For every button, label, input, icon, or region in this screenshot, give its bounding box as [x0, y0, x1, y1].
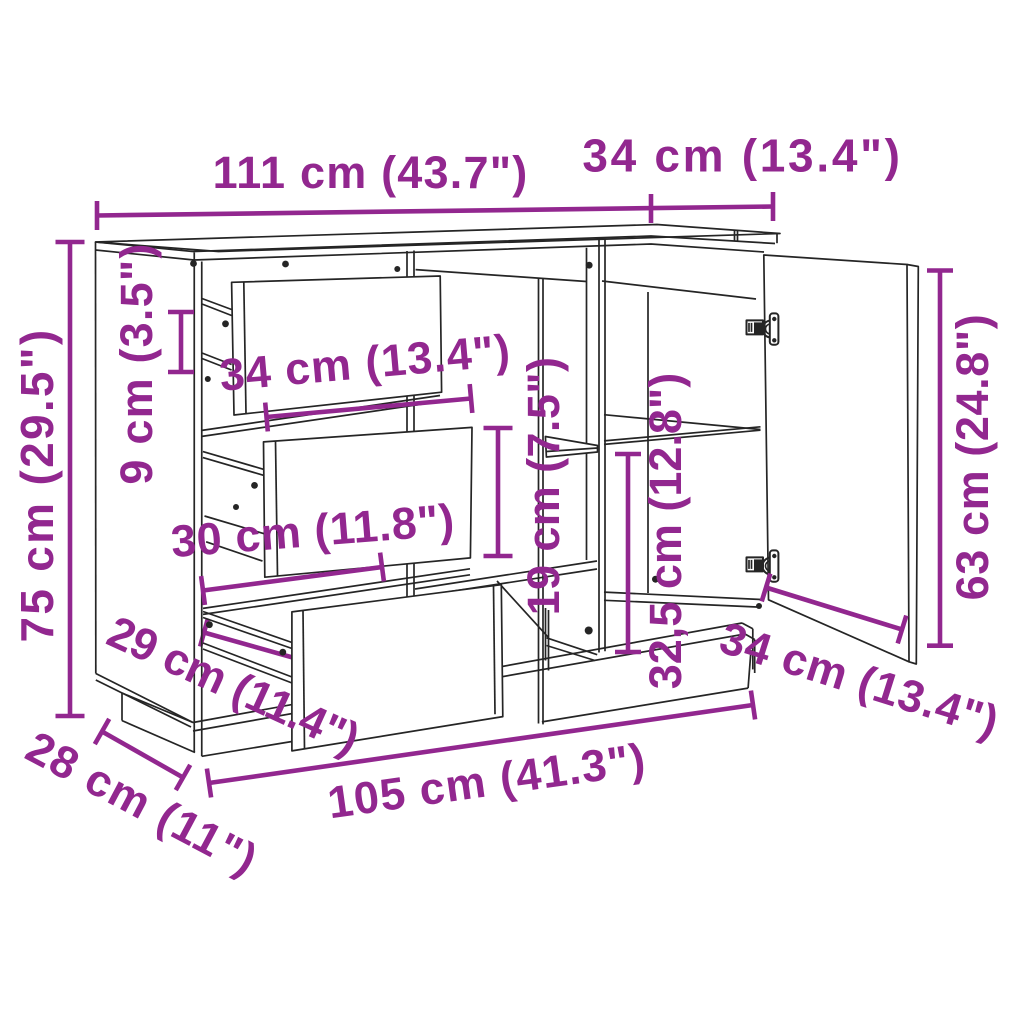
svg-text:34 cm (13.4"): 34 cm (13.4")	[582, 130, 902, 182]
svg-text:111 cm (43.7"): 111 cm (43.7")	[213, 147, 529, 198]
svg-text:75 cm (29.5"): 75 cm (29.5")	[11, 327, 63, 642]
svg-text:63 cm (24.8"): 63 cm (24.8")	[947, 314, 998, 601]
svg-text:9 cm (3.5"): 9 cm (3.5")	[111, 242, 162, 484]
svg-text:19 cm (7.5"): 19 cm (7.5")	[518, 357, 569, 616]
svg-text:32,5 cm (12.8"): 32,5 cm (12.8")	[640, 373, 691, 690]
